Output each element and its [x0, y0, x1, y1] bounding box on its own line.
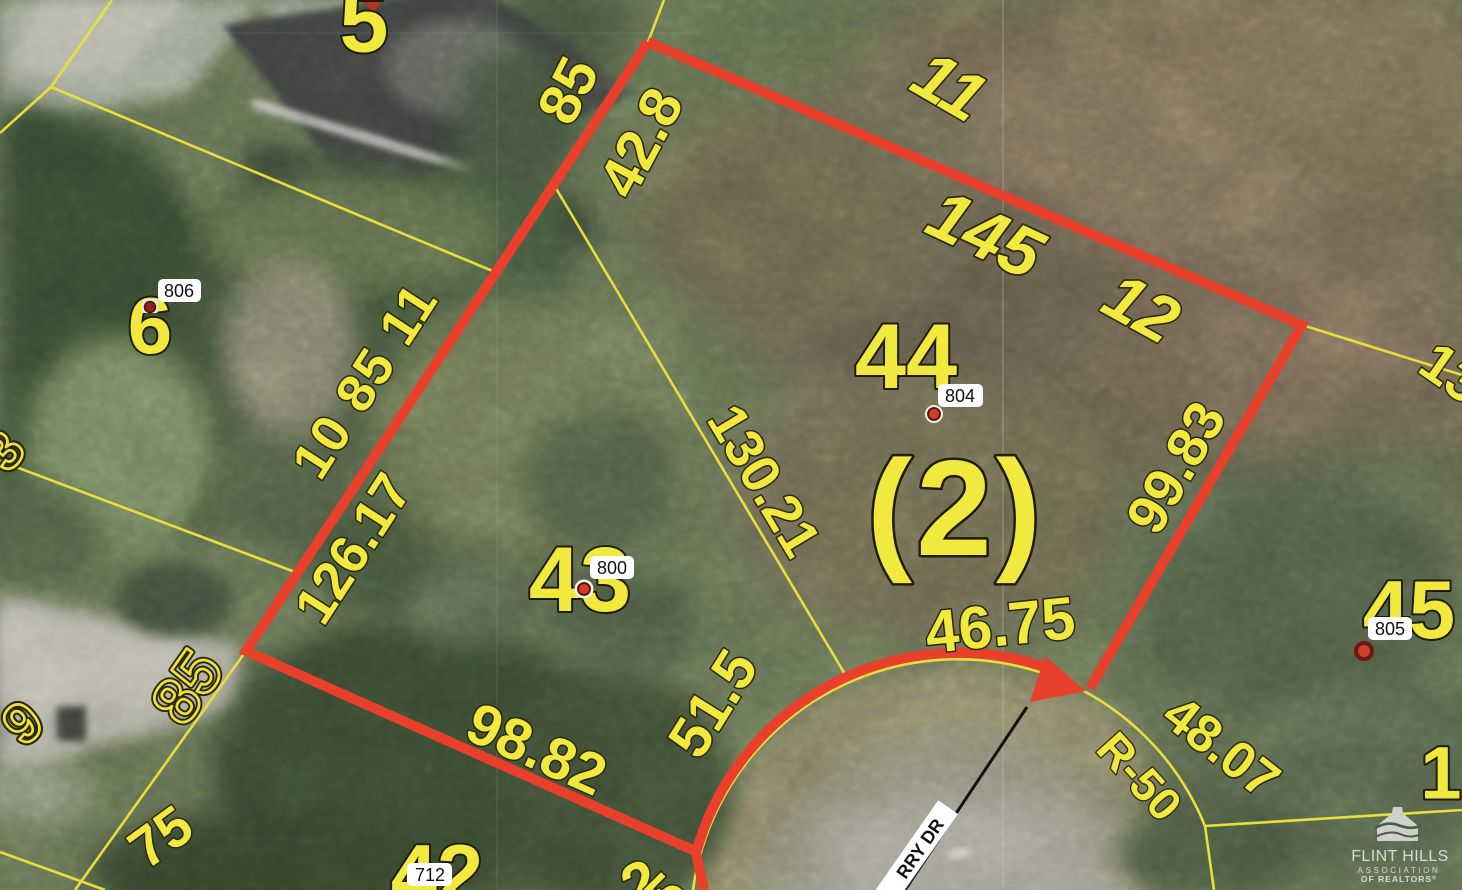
- svg-text:5: 5: [340, 0, 389, 71]
- svg-text:1: 1: [1420, 732, 1461, 815]
- svg-text:45: 45: [1363, 563, 1455, 656]
- svg-text:FLINT HILLS: FLINT HILLS: [1351, 848, 1448, 865]
- svg-text:804: 804: [945, 386, 975, 406]
- svg-text:712: 712: [415, 865, 445, 885]
- svg-text:806: 806: [164, 281, 194, 301]
- svg-text:43: 43: [529, 529, 631, 631]
- svg-text:805: 805: [1375, 619, 1405, 639]
- svg-text:(2): (2): [867, 432, 1045, 584]
- svg-text:800: 800: [597, 558, 627, 578]
- svg-text:OF REALTORS®: OF REALTORS®: [1361, 874, 1437, 884]
